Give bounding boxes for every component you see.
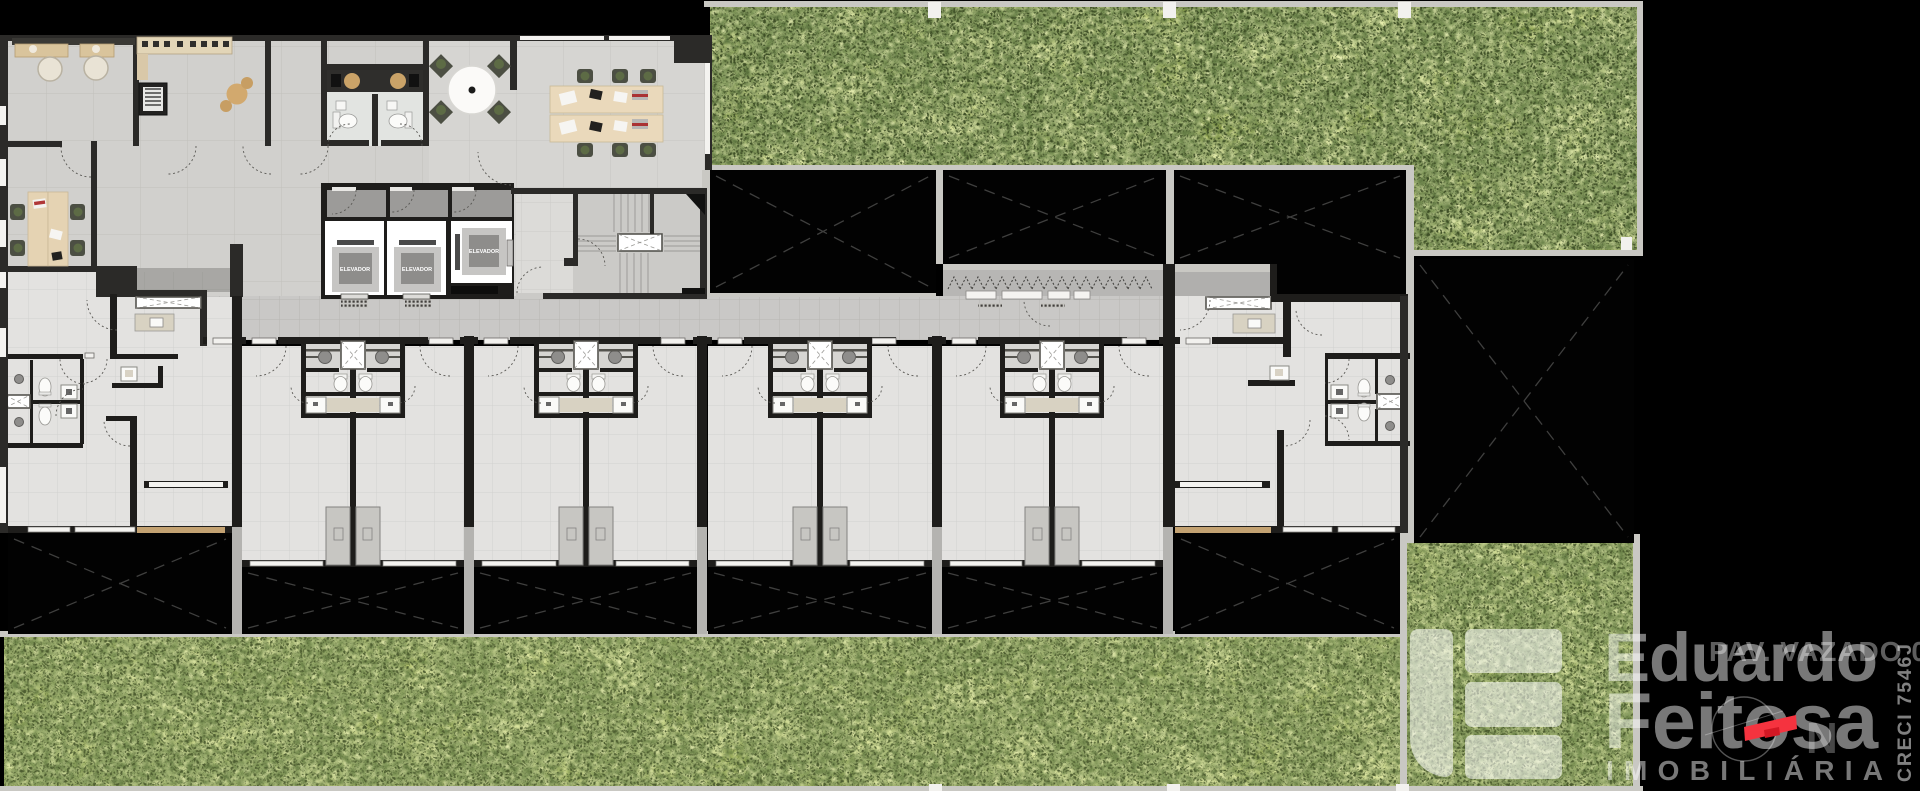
svg-text:Feitosa: Feitosa — [1604, 676, 1879, 765]
svg-text:N: N — [1806, 714, 1838, 763]
svg-text:PAV. VAZADO 01: PAV. VAZADO 01 — [1709, 636, 1920, 667]
svg-text:ELEVADOR: ELEVADOR — [340, 267, 370, 273]
svg-text:ELEVADOR: ELEVADOR — [402, 267, 432, 273]
svg-text:ELEVADOR: ELEVADOR — [469, 249, 499, 255]
